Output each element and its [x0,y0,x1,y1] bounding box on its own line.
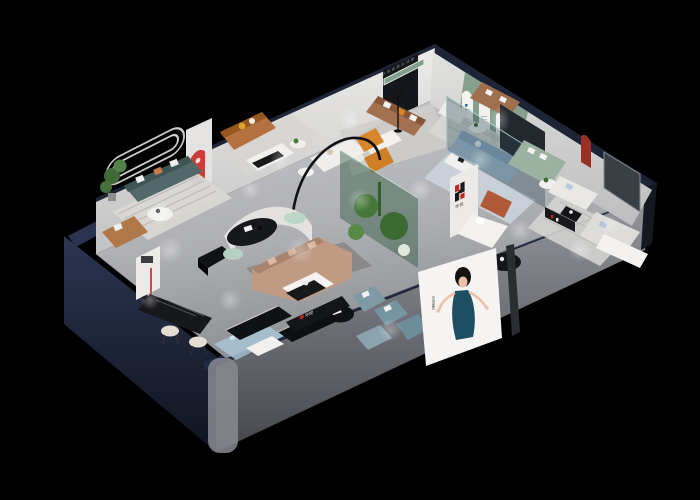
showroom-3d-render: 华悦家居生活馆 [0,0,700,500]
spotlight [240,180,260,200]
white-flower [398,244,410,256]
spotlight [156,236,184,264]
plant [348,224,364,240]
spotlight [286,236,314,264]
mint-chair [284,212,306,224]
cactus [378,182,381,216]
spotlight [568,238,592,262]
plant [380,212,408,240]
pillow [327,149,333,155]
face [459,277,468,288]
wall-wash-light [150,198,170,226]
exterior-corner-pillar [208,358,238,453]
mint-chair [223,248,243,260]
poster-vertical-text: 华悦家居 [431,295,435,310]
wall-wash-light [490,106,510,134]
spotlight [348,188,372,212]
spotlight [218,288,242,312]
small-plant [544,178,549,183]
wall-wash-light [340,106,360,134]
yellow-pillow [239,123,246,130]
red-book [551,215,553,218]
white-book [556,218,558,221]
spotlight [408,178,432,202]
hand [485,306,489,310]
dress [452,290,475,340]
spotlight [508,218,532,242]
decor [500,257,504,261]
pillow [249,118,255,124]
spotlight [600,215,620,235]
vase [258,226,262,230]
arch-text-line [482,116,488,117]
hand [436,309,440,313]
spotlight [140,290,160,310]
showroom-render-stage: 华悦家居生活馆 [0,0,700,500]
spotlight [378,318,402,342]
vase [304,281,309,286]
wall-wash-light [270,146,290,174]
small-plant [294,139,299,144]
arch-brand-mark [465,104,468,107]
table-decor [569,210,573,214]
spotlight [468,148,492,172]
shelf-slot [141,256,153,263]
